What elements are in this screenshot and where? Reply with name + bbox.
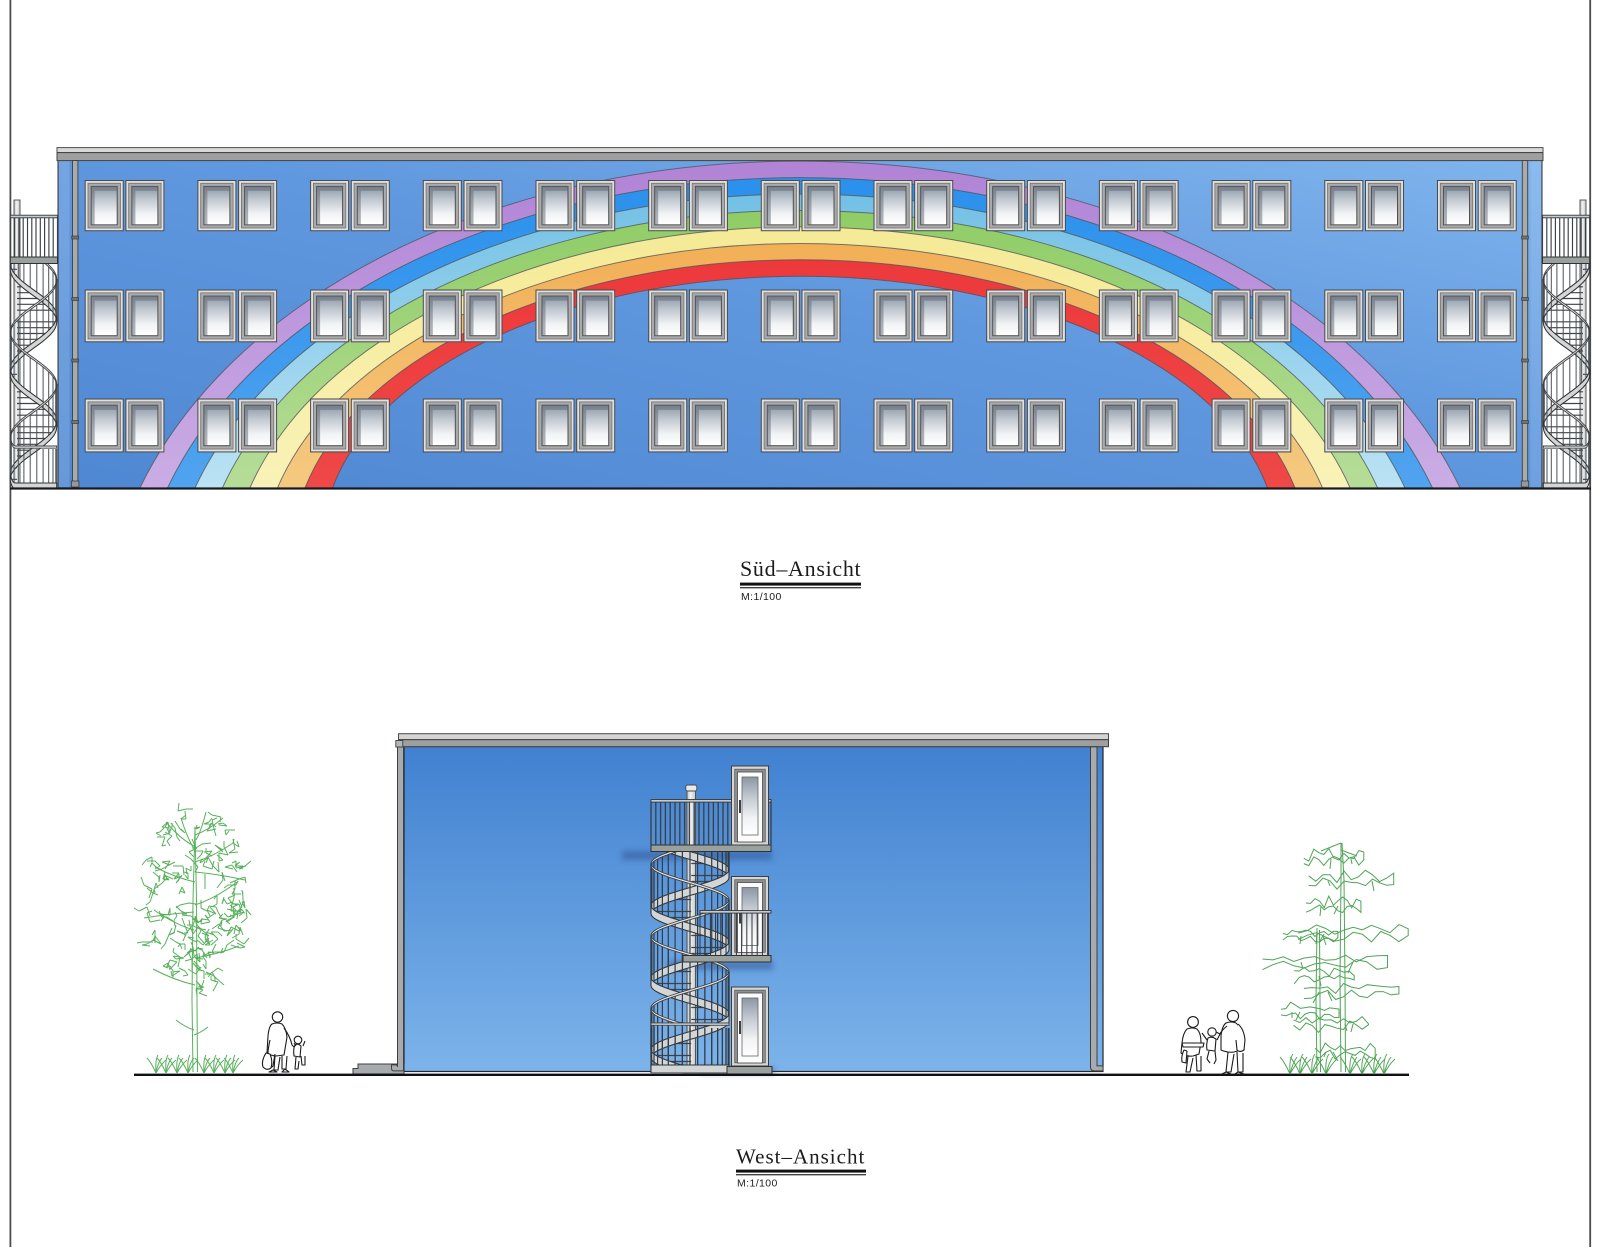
svg-text:West–Ansicht: West–Ansicht [736, 1145, 865, 1169]
svg-text:M:1/100: M:1/100 [741, 591, 782, 603]
svg-text:M:1/100: M:1/100 [737, 1178, 778, 1190]
svg-text:Süd–Ansicht: Süd–Ansicht [740, 556, 861, 581]
